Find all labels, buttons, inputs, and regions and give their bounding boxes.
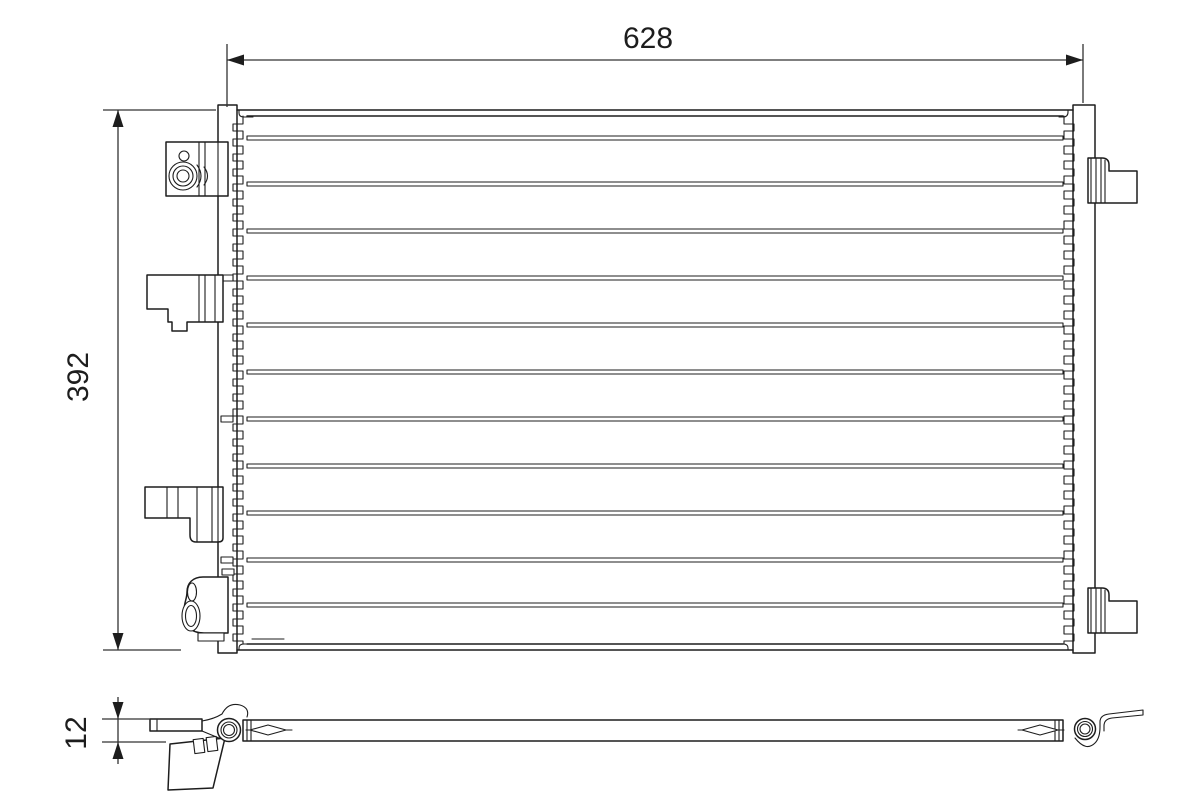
side-pipe-stub (150, 719, 202, 731)
side-bracket-clip-2 (206, 736, 218, 751)
mounting-bracket-lower-left (145, 487, 223, 542)
side-view-right-fitting (1075, 710, 1144, 747)
height-arrow-top (113, 110, 124, 127)
bracket-top-right-body (1088, 158, 1137, 203)
fitting-top-tab (222, 569, 234, 575)
technical-drawing-page: 628 392 (0, 0, 1200, 800)
side-view (150, 704, 1143, 790)
side-view-body (243, 720, 1063, 741)
width-arrow-left (227, 55, 244, 66)
front-view (145, 105, 1137, 653)
side-view-left-fitting (150, 704, 248, 790)
mounting-bracket-bottom-right (1088, 588, 1137, 633)
height-dimension-label: 392 (62, 352, 95, 402)
mounting-bracket-top-right (1088, 158, 1137, 203)
bracket-lower-left-body (145, 487, 223, 542)
core-tubes (247, 136, 1063, 607)
bracket-bottom-right-body (1088, 588, 1137, 633)
bracket-upper-left-body (147, 275, 223, 331)
thickness-arrow-top (113, 702, 124, 719)
thickness-dimension-label: 12 (60, 716, 93, 749)
core-plates (237, 110, 1073, 650)
width-dimension-label: 628 (623, 22, 673, 55)
dimension-width: 628 (227, 22, 1083, 107)
condenser-technical-drawing: 628 392 (0, 0, 1200, 800)
inlet-port-block (166, 142, 228, 196)
height-arrow-bottom (113, 633, 124, 650)
thickness-arrow-bottom (113, 742, 124, 759)
mounting-bracket-upper-left (147, 275, 223, 331)
width-arrow-right (1066, 55, 1083, 66)
fitting-foot (198, 633, 224, 641)
bottom-port-fitting (182, 569, 234, 641)
side-bracket-clip-1 (193, 738, 205, 753)
